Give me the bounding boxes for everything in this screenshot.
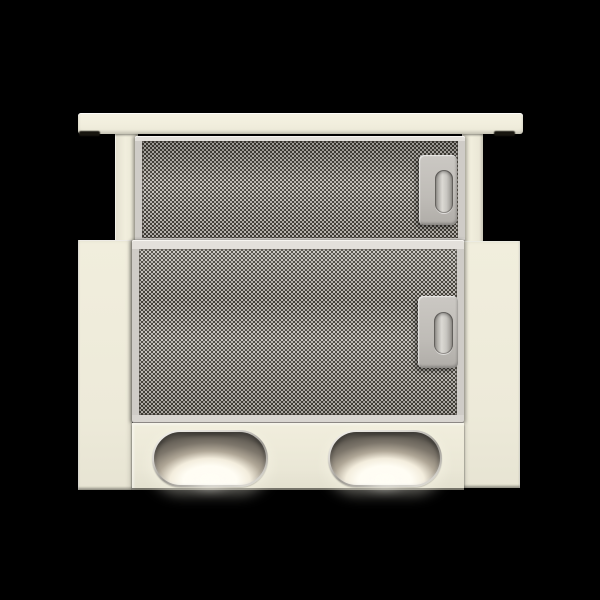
left-lamp (152, 430, 268, 487)
grease-filter-mesh-lower (139, 249, 457, 415)
upper-filter-latch (419, 155, 457, 225)
main-filter-unit (132, 240, 464, 423)
right-lamp (328, 430, 442, 487)
left-lamp-light (154, 432, 266, 485)
right-support-post (462, 133, 483, 243)
left-side-panel (78, 240, 132, 490)
right-side-panel (463, 241, 520, 488)
lamp-panel (132, 423, 464, 490)
cornice-shadow-left (79, 131, 100, 136)
lower-filter-latch (418, 296, 458, 368)
grease-filter-mesh-upper (142, 141, 458, 238)
right-lamp-light (330, 432, 440, 485)
hood-top-cornice (78, 113, 523, 134)
product-photo-cooker-hood (0, 0, 600, 600)
lower-latch-handle-slot (434, 312, 453, 354)
cornice-shadow-right (494, 131, 515, 136)
upper-latch-handle-slot (435, 170, 453, 213)
telescopic-visor-filter-unit (135, 136, 465, 242)
